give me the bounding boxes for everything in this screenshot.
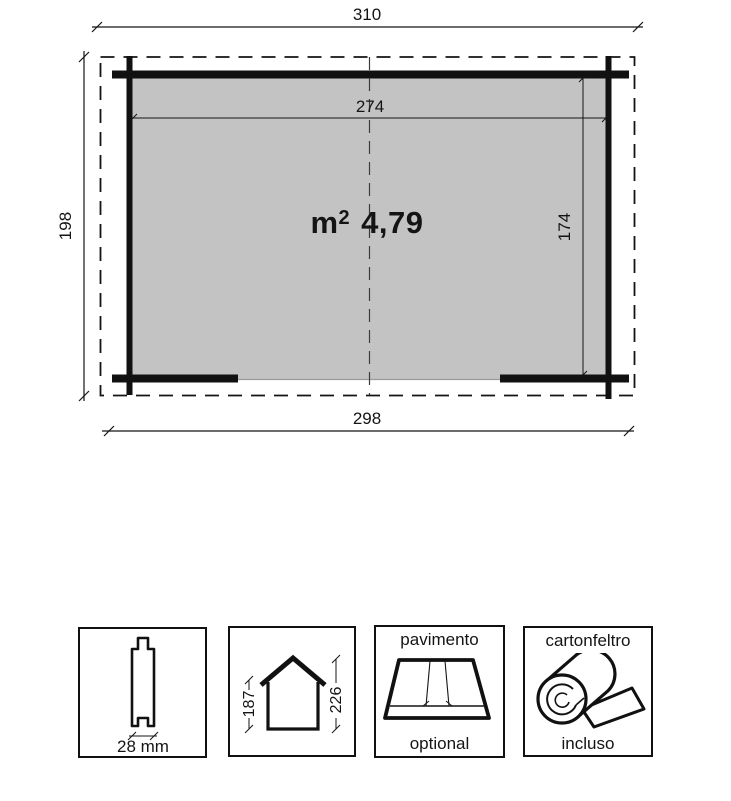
area-label: m24,79 [167, 205, 567, 241]
feature-box-floor: pavimento optional [374, 625, 505, 758]
wall-height-label: 187 [241, 691, 258, 718]
floor-icon [377, 656, 502, 728]
feature-box-plank-thickness: 28 mm [78, 627, 207, 758]
dim-roof-width: 310 [92, 5, 643, 32]
area-exponent: 2 [339, 207, 351, 229]
house-profile-icon: 187 226 [231, 628, 354, 754]
area-value: 4,79 [361, 205, 423, 240]
dim-ridge-height: 226 [328, 655, 345, 733]
dim-inner-width-label: 274 [356, 97, 384, 116]
dim-wall-width-label: 298 [353, 409, 381, 428]
dim-wall-height: 187 [241, 676, 258, 733]
feature-box-roof-felt: cartonfeltro incluso [523, 626, 653, 757]
felt-title: cartonfeltro [545, 628, 630, 653]
plank-thickness-label: 28 mm [117, 737, 169, 755]
dim-roof-width-label: 310 [353, 5, 381, 24]
wall-back [112, 71, 629, 79]
area-unit: m [310, 205, 338, 240]
felt-roll-icon [526, 653, 651, 731]
floor-note: optional [410, 731, 470, 756]
felt-note: incluso [562, 731, 615, 756]
floor-plan-sheet: 310 274 174 198 298 [0, 0, 731, 801]
dim-depth: 198 [56, 51, 89, 401]
feature-box-house-heights: 187 226 [228, 626, 356, 757]
ridge-height-label: 226 [328, 687, 345, 714]
floor-title: pavimento [400, 627, 478, 652]
wall-front-right [500, 375, 629, 383]
wall-front-left [112, 375, 238, 383]
plank-profile-icon: 28 mm [81, 629, 205, 755]
wall-left [127, 56, 133, 395]
dim-depth-label: 198 [56, 212, 75, 240]
wall-right [606, 56, 612, 399]
dim-wall-width: 298 [102, 409, 634, 436]
